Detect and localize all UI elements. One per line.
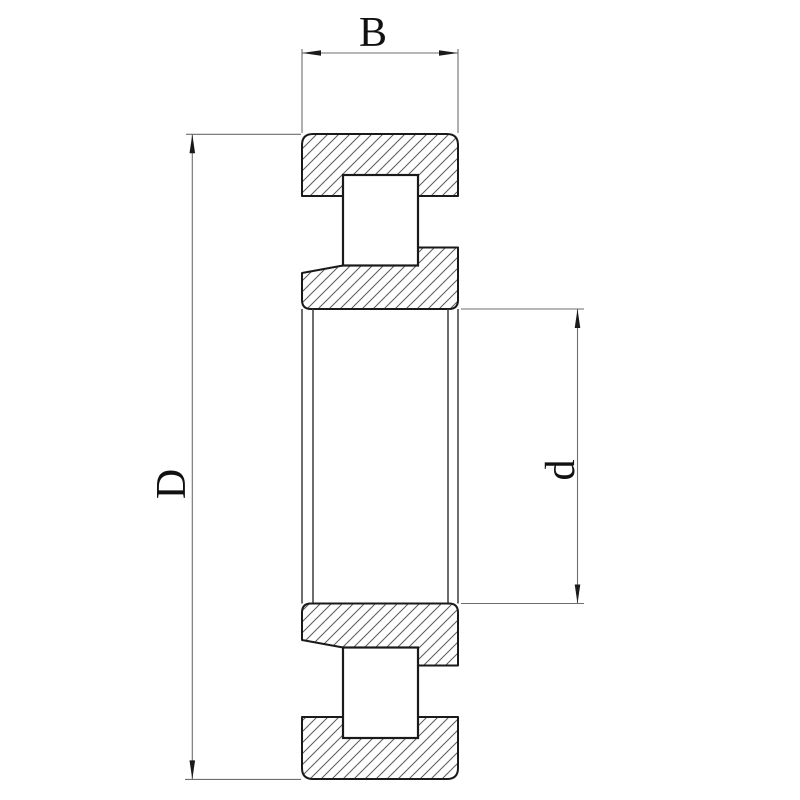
- arrowhead-d-bore-bottom: [575, 585, 581, 604]
- dimension-width-B: B: [302, 10, 458, 133]
- arrowhead-d-outer-bottom: [190, 760, 196, 779]
- bearing-top-section: [302, 134, 458, 309]
- drawing-canvas: B D d: [0, 0, 800, 800]
- arrowhead-b-left: [302, 50, 321, 56]
- bearing-technical-drawing: B D d: [0, 0, 800, 800]
- bore-region: [302, 309, 458, 604]
- roller-bottom: [343, 648, 418, 739]
- arrowhead-d-outer-top: [190, 134, 196, 153]
- dimension-bore-diameter-d: d: [461, 309, 584, 604]
- width-label: B: [359, 10, 387, 56]
- dimension-outer-diameter-D: D: [149, 134, 301, 779]
- arrowhead-d-bore-top: [575, 309, 581, 328]
- roller-top: [343, 175, 418, 266]
- arrowhead-b-right: [439, 50, 458, 56]
- bore-diameter-label: d: [538, 460, 584, 481]
- outer-diameter-label: D: [149, 469, 195, 499]
- bearing-bottom-section: [302, 604, 458, 780]
